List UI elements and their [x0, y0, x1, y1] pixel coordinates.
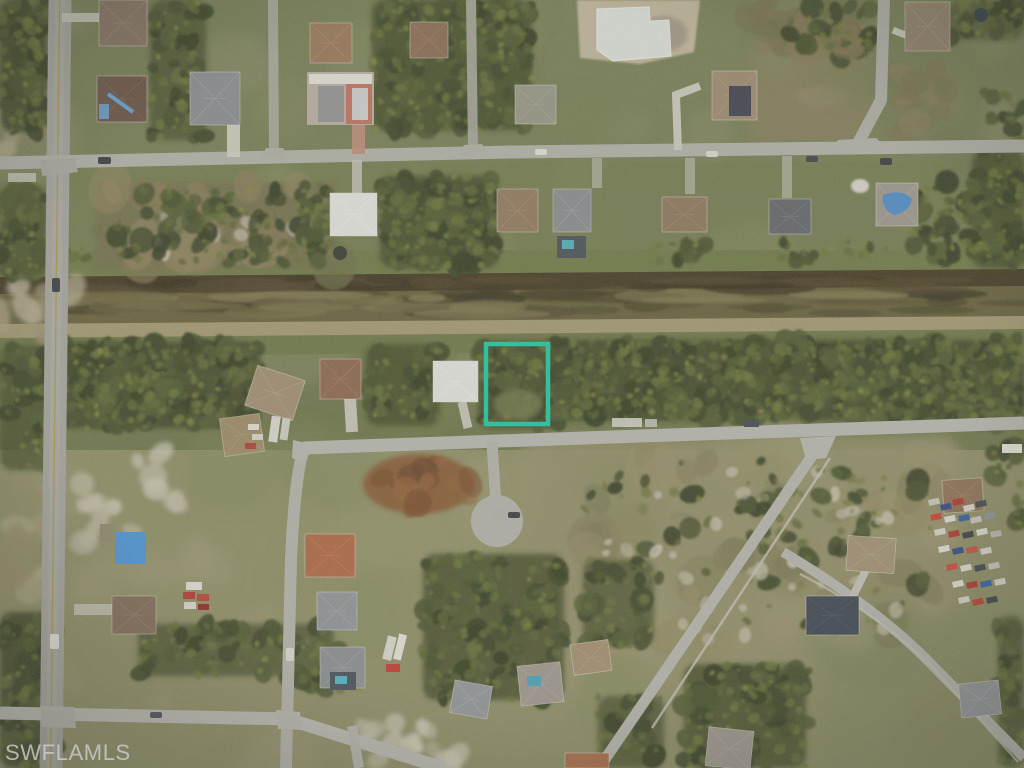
svg-text:SWFLAMLS: SWFLAMLS	[5, 740, 131, 765]
